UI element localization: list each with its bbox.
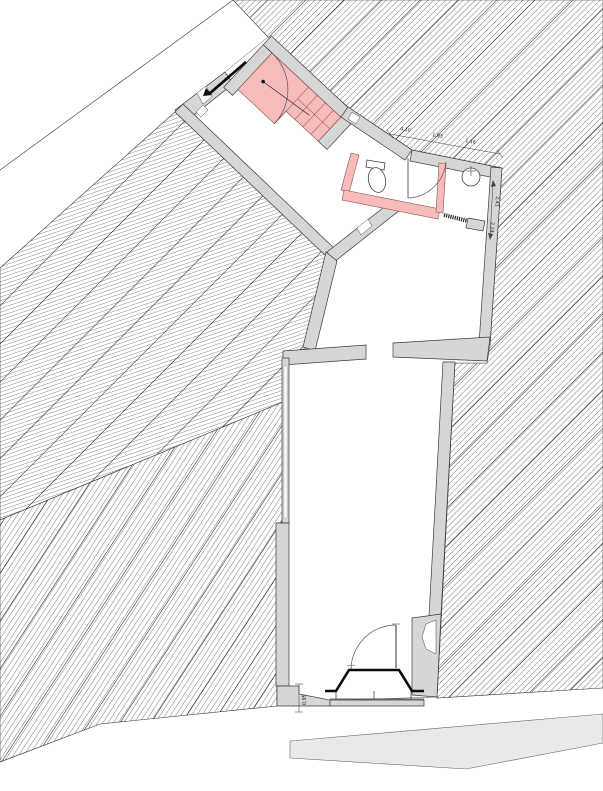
dimension-label-entrance: 0,95 <box>302 694 308 705</box>
west-wall-window-channel <box>284 366 287 518</box>
floor-plan-canvas: 4,10 1,93 1,16 2,41 2,24 0,95 <box>0 0 603 791</box>
sidewalk <box>290 714 603 769</box>
entrance-threshold <box>330 700 424 706</box>
dimension-label-right-1: 2,41 <box>493 196 500 207</box>
dimension-label-right-2: 2,24 <box>488 222 495 233</box>
wall-lower-room-west-lower <box>276 523 289 686</box>
floor-plan: 4,10 1,93 1,16 2,41 2,24 0,95 <box>0 0 603 791</box>
